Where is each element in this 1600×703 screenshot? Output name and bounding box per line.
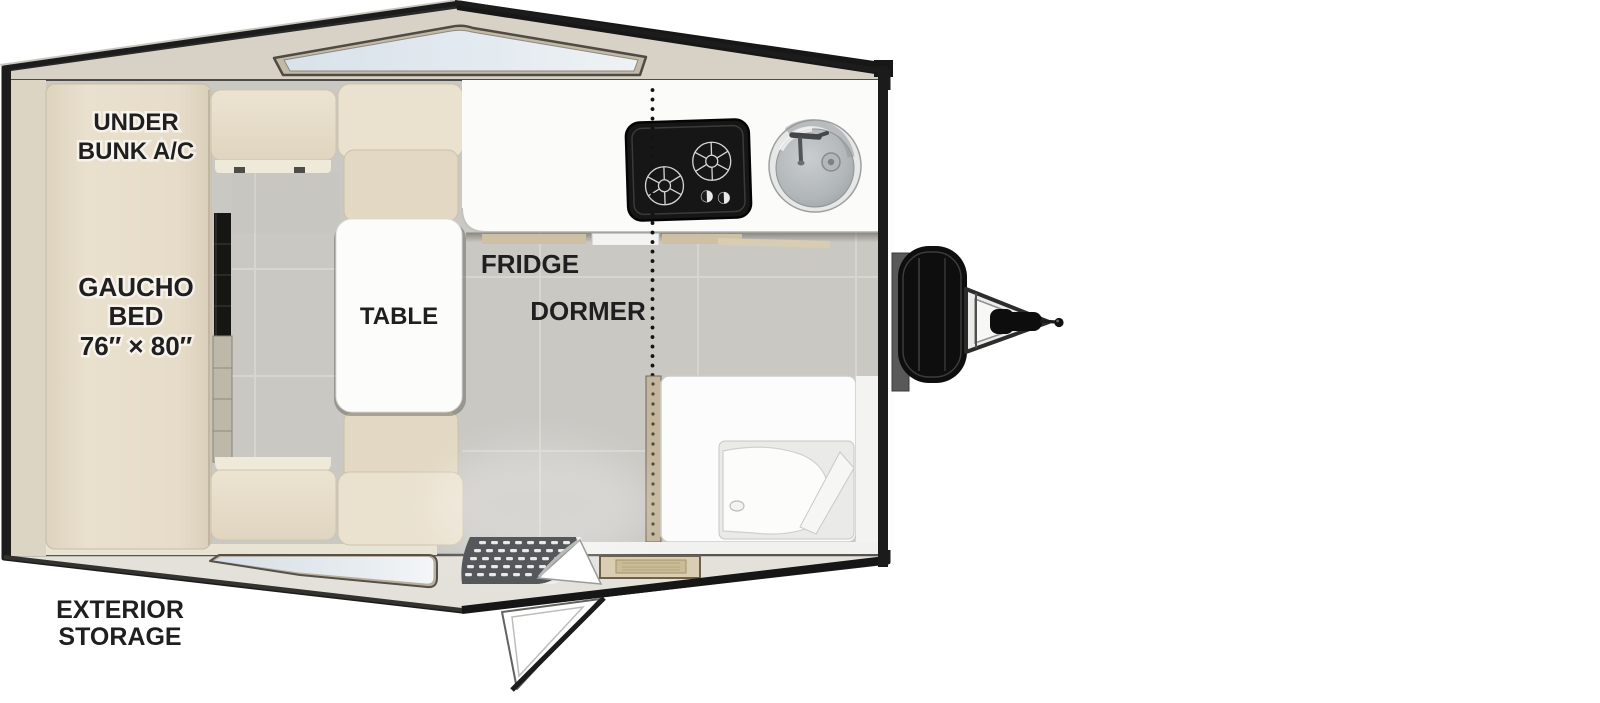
svg-text:BED: BED <box>109 301 164 331</box>
svg-text:UNDER: UNDER <box>93 109 178 136</box>
svg-text:BUNK A/C: BUNK A/C <box>78 138 194 165</box>
svg-text:GAUCHO: GAUCHO <box>78 272 194 302</box>
svg-text:FRIDGE: FRIDGE <box>481 249 579 279</box>
svg-text:EXTERIOR: EXTERIOR <box>56 596 184 624</box>
svg-text:TABLE: TABLE <box>360 303 438 330</box>
svg-text:76″ × 80″: 76″ × 80″ <box>80 331 192 361</box>
svg-text:DORMER: DORMER <box>530 296 646 326</box>
svg-text:STORAGE: STORAGE <box>58 623 181 651</box>
